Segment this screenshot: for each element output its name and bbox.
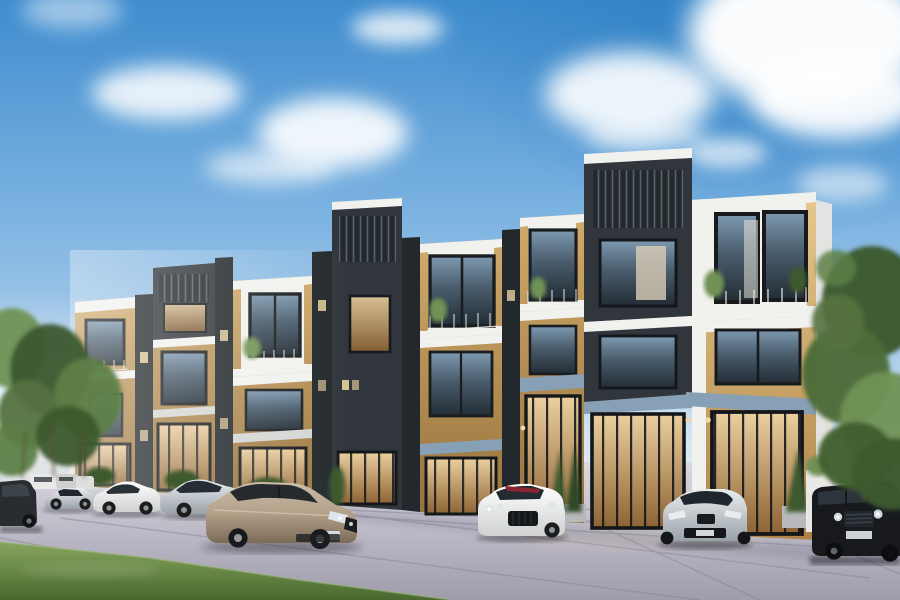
- sconce-u7: [685, 417, 690, 422]
- license-plate-blank: [696, 530, 714, 536]
- curtain-u7: [636, 246, 666, 300]
- curtain-u8: [744, 220, 758, 298]
- building-unit-5: [420, 239, 502, 517]
- balcony-plant-u8a: [704, 270, 724, 298]
- balcony-plant-u8b: [789, 267, 807, 293]
- grille-star: [349, 522, 353, 526]
- scene-svg: [0, 0, 900, 600]
- sconce-u8: [705, 417, 711, 423]
- pier-4: [402, 237, 420, 512]
- license-plate-blank-2: [846, 531, 872, 539]
- balcony-plant-u6: [530, 277, 546, 299]
- sconce-u6: [521, 426, 526, 431]
- building-unit-7-tall-tower: [584, 148, 692, 528]
- balcony-plant-u5: [429, 298, 447, 322]
- render-canvas: Daytime photorealistic rendering of a mo…: [0, 0, 900, 600]
- pier-5: [502, 229, 520, 520]
